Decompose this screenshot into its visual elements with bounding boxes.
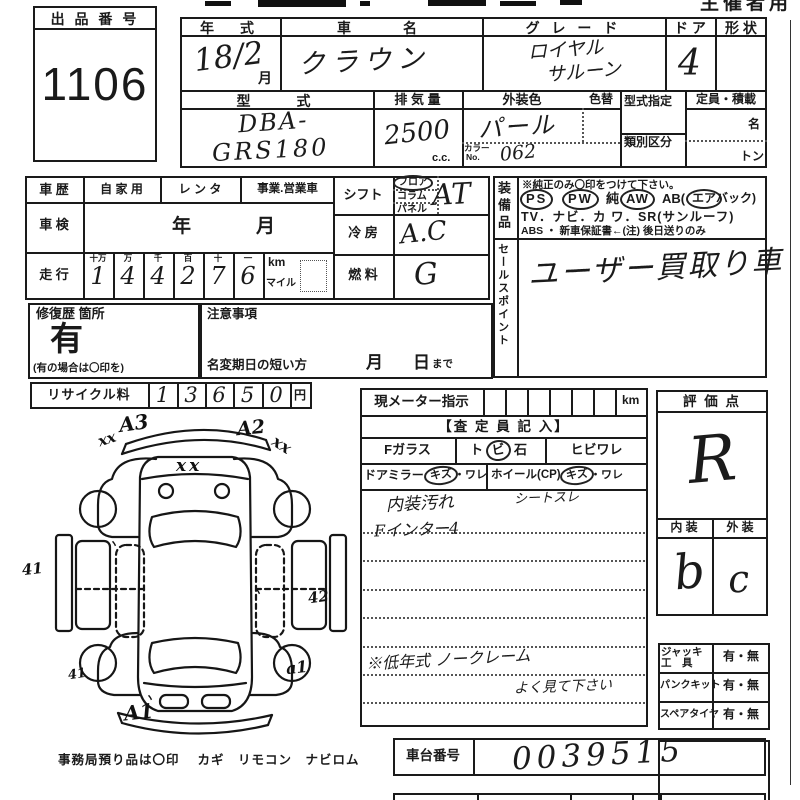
- model-value-line1: DBA-: [237, 108, 309, 137]
- mileage-digit: 7: [203, 264, 233, 288]
- equipment-aw: AW: [620, 189, 655, 210]
- name-change-month: 月: [366, 353, 383, 373]
- wheel-label: ホイール(CP): [491, 469, 561, 482]
- stone-chip-ishi: 石: [514, 443, 527, 458]
- grid-line: [493, 238, 767, 240]
- capacity-unit-persons: 名: [748, 118, 760, 132]
- name-value: クラウン: [297, 45, 430, 79]
- color-change-label: 色替: [582, 93, 620, 107]
- grid-line: [360, 437, 648, 439]
- recycle-digit: 1: [148, 385, 177, 406]
- equipment-ps: PS: [520, 189, 553, 210]
- grade-label: グ レ ー ド: [482, 20, 665, 36]
- name-label: 車 名: [280, 20, 482, 36]
- inspection-year: 年: [172, 216, 191, 238]
- year-label: 年 式: [180, 20, 280, 36]
- capacity-label: 定員・積載: [685, 93, 767, 107]
- grid-line: [620, 90, 622, 168]
- grid-line: [363, 674, 645, 676]
- grid-line: [393, 176, 395, 300]
- color-no-value: 062: [499, 142, 537, 165]
- grid-line: [517, 176, 519, 378]
- equipment-label: 装備品: [495, 181, 510, 237]
- grid-line: [615, 388, 617, 415]
- grid-line: [180, 90, 767, 92]
- grid-line: [527, 388, 529, 415]
- organizer-label-wrap: 主催者用: [700, 0, 798, 15]
- cutoff-title-fragment: [428, 0, 486, 6]
- name-change-label: 名変期日の短い方: [207, 358, 307, 372]
- grid-line: [477, 793, 479, 800]
- km-label: km: [268, 256, 285, 270]
- equipment-line2: TV．ナビ．カ ワ．SR(サンルーフ): [521, 210, 734, 224]
- shift-option-panel: パネル: [397, 204, 427, 216]
- cautions-label: 注意事項: [207, 307, 257, 321]
- grade-value-line1: ロイヤル: [527, 38, 604, 62]
- assessor-title: 【査 定 員 記 入】: [360, 419, 648, 435]
- mile-checkbox: [300, 260, 327, 292]
- lot-number-title: 出 品 番 号: [33, 11, 157, 27]
- assessor-note-seat: シートスレ: [514, 491, 579, 506]
- grid-line: [363, 702, 645, 704]
- spare-tire-label: スペアタイヤ: [660, 709, 719, 721]
- grid-line: [363, 560, 645, 562]
- puncture-kit-value: 有・無: [712, 679, 770, 693]
- grid-line: [660, 793, 662, 800]
- spare-tire-value: 有・無: [712, 708, 770, 722]
- jack-tools-value: 有・無: [712, 650, 770, 664]
- cutoff-title-fragment: [360, 1, 370, 6]
- equipment-ab: AB(: [662, 192, 685, 207]
- grid-line: [658, 701, 770, 703]
- model-value-line2: GRS180: [211, 135, 330, 165]
- organizer-label: 主催者用: [700, 0, 798, 15]
- shift-label: シフト: [333, 188, 393, 203]
- history-rental: レ ン タ: [160, 183, 240, 197]
- grid-line: [333, 254, 490, 256]
- current-meter-label: 現メーター指示: [360, 394, 483, 410]
- front-glass-label: Fガラス: [360, 443, 455, 458]
- exterior-color-label: 外装色: [462, 93, 582, 108]
- damage-mark: a1: [285, 659, 308, 677]
- jack-tools-label-line2: 工 具: [661, 657, 693, 669]
- damage-mark: A3: [118, 411, 150, 435]
- grid-line: [685, 140, 767, 142]
- crack-label: ヒビワレ: [545, 443, 648, 458]
- mileage-label: 走 行: [25, 268, 83, 283]
- wheel-ware: ・ワレ: [590, 469, 623, 482]
- grid-line: [473, 738, 475, 776]
- grid-line: [360, 415, 648, 417]
- shape-label: 形 状: [715, 20, 767, 36]
- interior-label: 内 装: [656, 521, 712, 535]
- exterior-rating-value: c: [727, 559, 751, 598]
- mileage-digit: 1: [83, 264, 113, 288]
- rating-label: 評 価 点: [656, 394, 768, 410]
- mileage-digit: 2: [173, 264, 203, 288]
- grid-line: [483, 388, 485, 415]
- damage-tick: ヽ: [144, 694, 154, 704]
- damage-mark: 42: [307, 589, 330, 607]
- grid-line: [570, 793, 572, 800]
- name-change-day: 日: [413, 353, 430, 373]
- grid-line: [360, 489, 648, 491]
- displacement-label: 排 気 量: [373, 93, 462, 108]
- repair-history-note: (有の場合は〇印を): [33, 362, 124, 374]
- mirror-ware: ・ワレ: [454, 469, 487, 482]
- grid-line: [25, 202, 335, 204]
- grid-line: [263, 252, 265, 300]
- history-private: 自 家 用: [83, 183, 160, 197]
- damage-mark: A2: [236, 418, 266, 439]
- damage-tick: ヽ: [108, 540, 118, 550]
- fuel-label: 燃 料: [333, 268, 393, 283]
- repair-history-value: 有: [50, 320, 83, 358]
- grid-line: [593, 388, 595, 415]
- year-month-suffix: 月: [258, 70, 272, 86]
- history-business: 事業.営業車: [240, 183, 335, 196]
- mileage-digit: 4: [113, 264, 143, 288]
- grid-line: [658, 411, 766, 413]
- equipment-pw: PW: [562, 189, 599, 210]
- recycle-digit: 6: [205, 385, 233, 406]
- grid-line: [505, 388, 507, 415]
- type-designation-label: 型式指定: [624, 95, 672, 109]
- recycle-fee-label: リサイクル料: [30, 388, 148, 403]
- cutoff-title-fragment: [500, 1, 536, 6]
- door-mirror-label: ドアミラー: [364, 469, 424, 483]
- stone-chip-to: ト: [470, 443, 483, 458]
- chassis-number-label: 車台番号: [393, 748, 473, 764]
- name-change-made: まで: [432, 358, 453, 370]
- displacement-value: 2500: [383, 117, 452, 150]
- rating-value: R: [685, 426, 739, 494]
- page-edge-line: [790, 20, 791, 785]
- equipment-line3: ABS ・ 新車保証書←(注) 後日送りのみ: [521, 225, 706, 237]
- assessor-note-interior: 内装汚れ: [386, 494, 455, 515]
- inspection-month: 月: [256, 216, 275, 238]
- mileage-digit: 4: [143, 264, 173, 288]
- grid-line: [290, 382, 292, 409]
- lot-number-value: 1106: [33, 58, 157, 111]
- sales-point-label: セールスポイント: [496, 243, 509, 375]
- recycle-digit: 5: [233, 385, 262, 406]
- recycle-yen: 円: [294, 389, 306, 403]
- bottom-partial-table: [393, 793, 766, 800]
- exterior-color-value: パール: [477, 112, 556, 141]
- grid-line: [685, 108, 767, 110]
- damage-mark: xx: [176, 458, 202, 475]
- class-category-label: 類別区分: [624, 136, 672, 150]
- ac-label: 冷 房: [333, 226, 393, 241]
- grid-line: [549, 388, 551, 415]
- grid-line: [632, 793, 634, 800]
- interior-rating-value: b: [672, 547, 708, 598]
- assessor-note-lookwell: よく見て下さい: [514, 678, 612, 695]
- damage-mark: 41: [67, 667, 87, 682]
- grid-line: [360, 463, 648, 465]
- equipment-note: ※純正のみ〇印をつけて下さい。: [522, 179, 680, 191]
- color-no-label2: No.: [466, 153, 480, 163]
- grid-line: [582, 108, 584, 142]
- capacity-unit-tons: トン: [740, 150, 764, 164]
- door-value: 4: [678, 46, 701, 82]
- year-value: 18/2: [192, 38, 265, 77]
- meter-km-label: km: [622, 394, 639, 408]
- equipment-bag: バック): [716, 192, 756, 206]
- ac-value: A.C: [399, 218, 448, 249]
- shift-option-floor: フロア: [393, 175, 433, 191]
- mile-label: マイル: [266, 278, 296, 290]
- damage-mark: 41: [21, 561, 43, 578]
- cutoff-title-fragment: [258, 0, 346, 7]
- door-label: ド ア: [665, 20, 715, 36]
- office-deposit-note: 事務局預り品は〇印 カギ リモコン ナビロム: [58, 753, 359, 767]
- grid-line: [658, 672, 770, 674]
- inspection-label: 車 検: [25, 218, 83, 233]
- auction-sheet: 主催者用 出 品 番 号 1106 年 式 18/2 月 車 名 クラウン グ …: [0, 0, 800, 800]
- grid-line: [571, 388, 573, 415]
- fuel-value: G: [413, 259, 439, 291]
- displacement-unit: c.c.: [432, 152, 450, 165]
- equipment-jun: 純: [606, 192, 619, 207]
- shift-option-column: コラム: [397, 191, 427, 203]
- grid-line: [363, 589, 645, 591]
- shift-value: AT: [431, 179, 471, 210]
- grid-line: [35, 28, 155, 30]
- exterior-label: 外 装: [712, 521, 768, 535]
- chassis-number-value: 0039515: [511, 735, 685, 775]
- mileage-digit: 6: [233, 264, 263, 288]
- damage-tick: ヽ: [252, 588, 262, 598]
- grid-line: [363, 617, 645, 619]
- cutoff-title-fragment: [205, 1, 231, 6]
- cutoff-title-fragment: [560, 0, 582, 5]
- recycle-digit: 0: [262, 385, 290, 406]
- recycle-digit: 3: [177, 385, 205, 406]
- history-label: 車 歴: [25, 183, 83, 198]
- assessor-note-finter: Fインター4: [374, 521, 460, 540]
- grid-line: [455, 437, 457, 463]
